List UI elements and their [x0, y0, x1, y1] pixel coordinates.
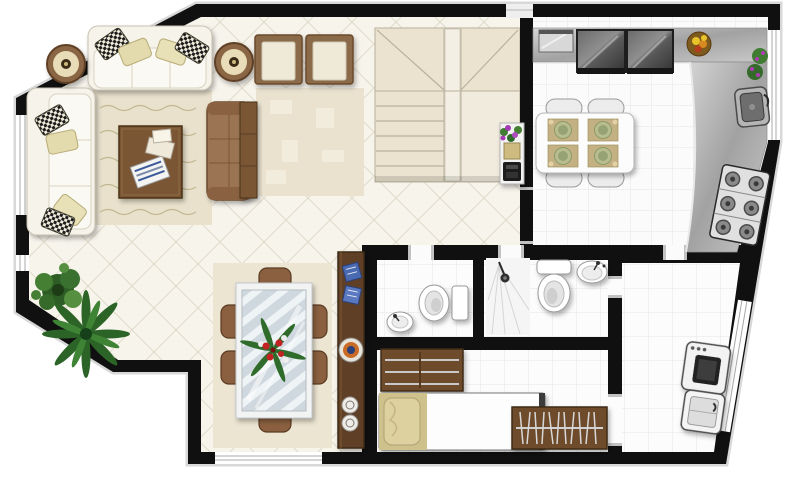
- telephone: [503, 162, 521, 181]
- armchair-2: [306, 35, 353, 84]
- dining-room: [213, 252, 364, 448]
- fruit-bowl: [687, 32, 711, 56]
- kitchen-window: [768, 30, 780, 140]
- side-table-right: [215, 43, 253, 81]
- stair-landing-window: [506, 4, 533, 18]
- freezer: [627, 30, 673, 74]
- floor-plan-canvas: [0, 0, 800, 479]
- side-table-left: [47, 45, 85, 83]
- sofa-left: [27, 88, 95, 237]
- bath-toilet: [537, 260, 571, 312]
- dining-window: [215, 452, 322, 464]
- potted-palm: [42, 290, 130, 378]
- wc-toilet: [419, 285, 468, 321]
- refrigerator: [577, 30, 625, 74]
- flower-stand: [500, 123, 524, 184]
- shelf-unit: [381, 349, 463, 391]
- floor-plan: [0, 0, 800, 479]
- staircase: [375, 28, 520, 182]
- wc-basin: [387, 312, 413, 332]
- sideboard: [338, 252, 364, 448]
- left-window-small: [16, 255, 29, 271]
- breakfast-table: [536, 113, 634, 173]
- wardrobe-hangers: [512, 407, 607, 449]
- coffee-table: [119, 126, 182, 198]
- bath-basin: [577, 261, 607, 283]
- counter-appliance: [539, 30, 573, 52]
- sofa-top: [88, 26, 212, 90]
- washing-machine: [681, 341, 731, 395]
- console-table: [240, 102, 257, 198]
- kitchen-sink: [734, 86, 770, 127]
- laundry-tub: [680, 389, 725, 434]
- armchair-1: [255, 35, 302, 84]
- corner-shower: [486, 258, 530, 335]
